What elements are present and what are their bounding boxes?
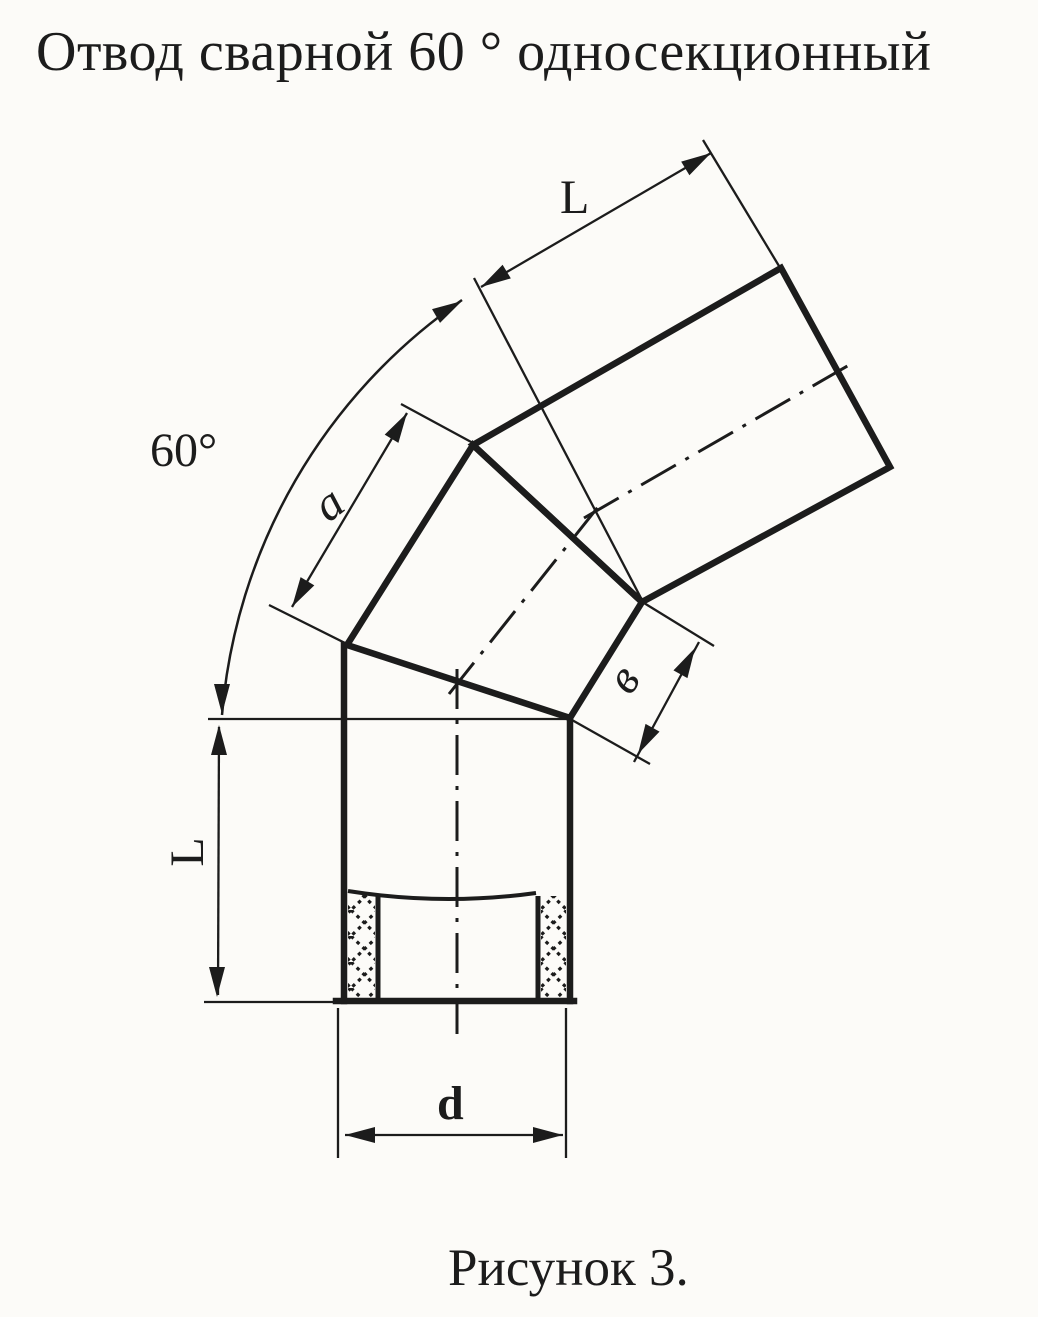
pipe-outlines [336, 268, 890, 1001]
ext-line-v-bottom [572, 720, 650, 764]
inner-edge-label: в [596, 655, 651, 702]
arrowhead [681, 153, 711, 175]
socket-packing-right [541, 896, 566, 998]
outer-edge-label: a [303, 476, 355, 533]
arrowhead [385, 413, 407, 443]
angle-label: 60° [150, 424, 217, 477]
arrowhead [345, 1127, 375, 1143]
ext-line-a-bottom [269, 605, 347, 644]
ext-line-a-top [401, 404, 473, 443]
ext-line-v-top [644, 603, 714, 646]
upper-pipe-outline [473, 268, 890, 602]
ext-line-upper-L-right [703, 140, 779, 266]
arrowhead [214, 684, 230, 714]
socket-packing-left [348, 894, 375, 998]
elbow-technical-drawing: 60° L a в L d [0, 0, 1038, 1317]
arrowhead [209, 967, 225, 997]
dimension-labels: 60° L a в L d [150, 171, 651, 1130]
arrowhead [673, 648, 695, 678]
diameter-label: d [437, 1077, 464, 1130]
dimension-lines [204, 140, 779, 1158]
arrowhead [211, 725, 227, 755]
arrowhead [533, 1127, 563, 1143]
middle-section-outline [347, 445, 642, 718]
dim-line-lower-L [218, 727, 219, 995]
lower-length-label: L [161, 837, 214, 866]
middle-section-centerline [449, 502, 602, 694]
upper-length-label: L [560, 171, 589, 224]
ext-line-upper-L-left [474, 278, 642, 600]
upper-pipe-centerline [584, 361, 856, 518]
dim-line-upper-L [481, 153, 711, 287]
arrowhead [638, 724, 660, 754]
scanned-drawing-page: Отвод сварной 60 ° односекционный [0, 0, 1038, 1317]
arrowhead [292, 577, 314, 607]
figure-caption: Рисунок 3. [448, 1238, 689, 1298]
arrowhead [481, 265, 511, 287]
